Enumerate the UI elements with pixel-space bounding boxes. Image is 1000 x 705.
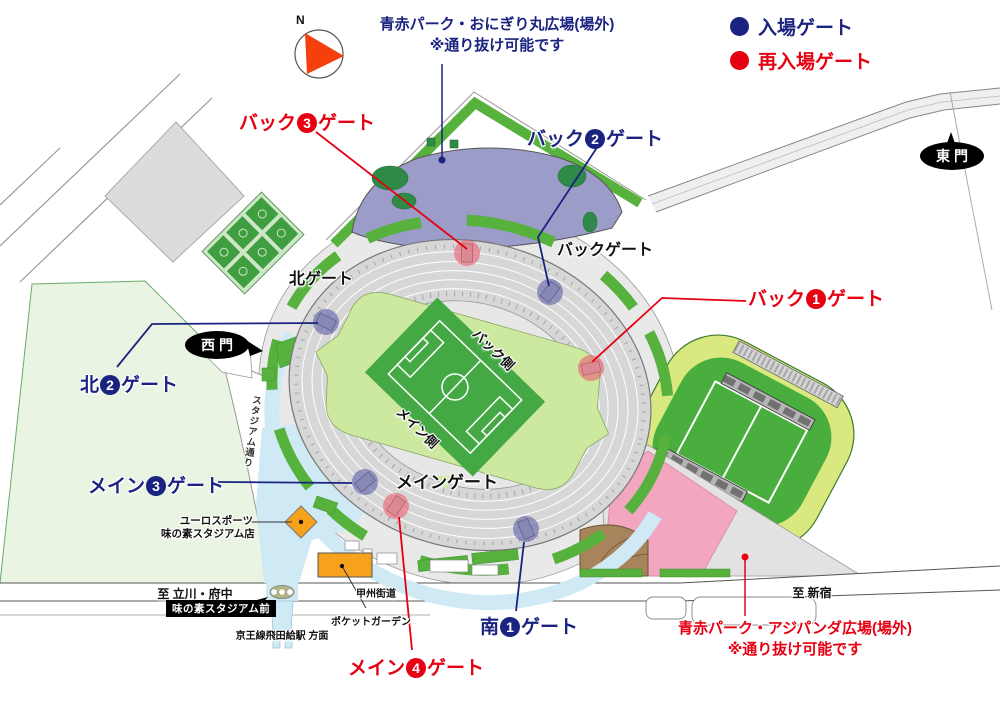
stadium-gate-map: N 青赤パーク・おにぎり丸広場(場外) ※通り抜け可能です 入場ゲート 再入場ゲ… [0, 0, 1000, 705]
crosswalk-marker [270, 586, 294, 599]
label-euro-sports: ユーロスポーツ 味の素スタジアム店 [161, 515, 253, 540]
legend: 入場ゲート 再入場ゲート [730, 13, 872, 81]
label-gate-main4: メイン4ゲート [348, 653, 484, 680]
gate-suffix: ゲート [167, 476, 224, 497]
label-gate-back3: バック3ゲート [239, 108, 375, 135]
gate-prefix: 北 [80, 375, 99, 396]
legend-entry-label: 入場ゲート [758, 13, 853, 40]
gate-suffix: ゲート [827, 289, 884, 310]
gate-prefix: 南 [480, 617, 499, 638]
legend-entry-row: 入場ゲート [730, 13, 872, 40]
gate-suffix: ゲート [521, 617, 578, 638]
gate-number-badge: 2 [585, 129, 605, 149]
label-gate-back2: バック2ゲート [527, 124, 663, 151]
reentry-gate-dot-icon [730, 51, 749, 70]
note-onigiri-line2: ※通り抜け可能です [380, 35, 615, 56]
legend-reentry-row: 再入場ゲート [730, 47, 872, 74]
marker-back1-reentry [578, 355, 604, 381]
note-ajipanda-plaza: 青赤パーク・アジパンダ広場(場外) ※通り抜け可能です [678, 618, 912, 660]
gate-prefix: バック [527, 129, 584, 150]
road-northeast [648, 88, 1000, 310]
compass-n-label: N [296, 13, 305, 27]
label-pocket-garden: ポケットガーデン [331, 613, 411, 628]
gate-prefix: バック [239, 113, 296, 134]
gate-suffix: ゲート [427, 658, 484, 679]
note-onigiri-plaza: 青赤パーク・おにぎり丸広場(場外) ※通り抜け可能です [380, 14, 615, 56]
marker-main3-entry [352, 469, 378, 495]
note-ajipanda-line2: ※通り抜け可能です [678, 639, 912, 660]
label-north-gate: 北ゲート [289, 265, 353, 289]
gate-prefix: メイン [88, 476, 145, 497]
label-main-gate: メインゲート [396, 468, 498, 493]
marker-north2-entry [313, 309, 339, 335]
note-onigiri-line1: 青赤パーク・おにぎり丸広場(場外) [380, 14, 615, 35]
marker-south1-entry [513, 516, 539, 542]
west-gate-sign: 西門 [185, 331, 249, 359]
bus-stop-sign: 味の素スタジアム前 [166, 600, 276, 617]
entry-gate-dot-icon [730, 17, 749, 36]
gate-prefix: メイン [348, 658, 405, 679]
marker-back2-entry [537, 279, 563, 305]
gate-number-badge: 4 [406, 658, 426, 678]
gate-suffix: ゲート [606, 129, 663, 150]
legend-reentry-label: 再入場ゲート [758, 47, 872, 74]
marker-back3-reentry [454, 240, 480, 266]
gate-number-badge: 2 [100, 375, 120, 395]
pocket-garden-area [318, 553, 372, 577]
note-ajipanda-line1: 青赤パーク・アジパンダ広場(場外) [678, 618, 912, 639]
gate-number-badge: 3 [146, 476, 166, 496]
label-to-shinjuku: 至 新宿 [792, 584, 831, 601]
gate-number-badge: 1 [806, 289, 826, 309]
euro-sports-line2: 味の素スタジアム店 [161, 528, 253, 541]
compass-icon [295, 30, 344, 78]
gate-number-badge: 1 [500, 617, 520, 637]
gate-prefix: バック [748, 289, 805, 310]
gate-number-badge: 3 [297, 113, 317, 133]
label-gate-south1: 南1ゲート [480, 612, 578, 639]
label-keio-direction: 京王線飛田給駅 方面 [236, 627, 329, 642]
label-back-gate: バックゲート [557, 236, 653, 260]
gate-suffix: ゲート [318, 113, 375, 134]
label-gate-north2: 北2ゲート [80, 370, 178, 397]
marker-main4-reentry [383, 493, 409, 519]
label-gate-back1: バック1ゲート [748, 284, 884, 311]
east-gate-sign: 東門 [920, 142, 984, 170]
label-gate-main3: メイン3ゲート [88, 471, 224, 498]
gate-suffix: ゲート [121, 375, 178, 396]
label-koshu-kaido: 甲州街道 [356, 585, 396, 600]
euro-sports-line1: ユーロスポーツ [161, 515, 253, 528]
